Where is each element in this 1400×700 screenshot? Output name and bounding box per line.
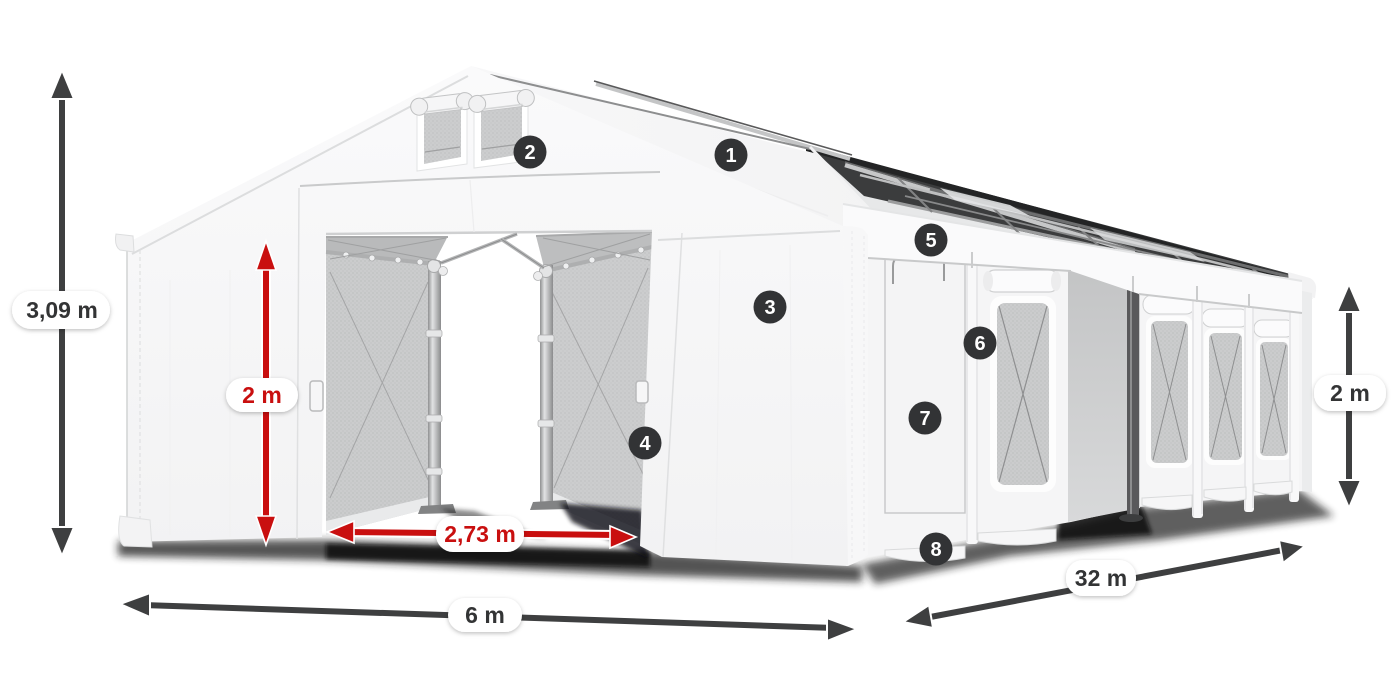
svg-text:5: 5 [925,230,936,252]
svg-text:7: 7 [919,408,930,430]
svg-text:2,73 m: 2,73 m [444,521,516,547]
svg-text:4: 4 [639,433,651,455]
svg-text:3: 3 [764,297,775,319]
svg-text:1: 1 [725,145,736,167]
svg-text:32 m: 32 m [1075,565,1127,591]
svg-text:6: 6 [974,333,985,355]
svg-text:3,09 m: 3,09 m [26,297,98,323]
svg-text:2 m: 2 m [1330,380,1370,406]
svg-text:2: 2 [524,142,535,164]
svg-text:8: 8 [930,539,941,561]
svg-text:6 m: 6 m [465,602,505,628]
svg-text:2 m: 2 m [242,382,282,408]
